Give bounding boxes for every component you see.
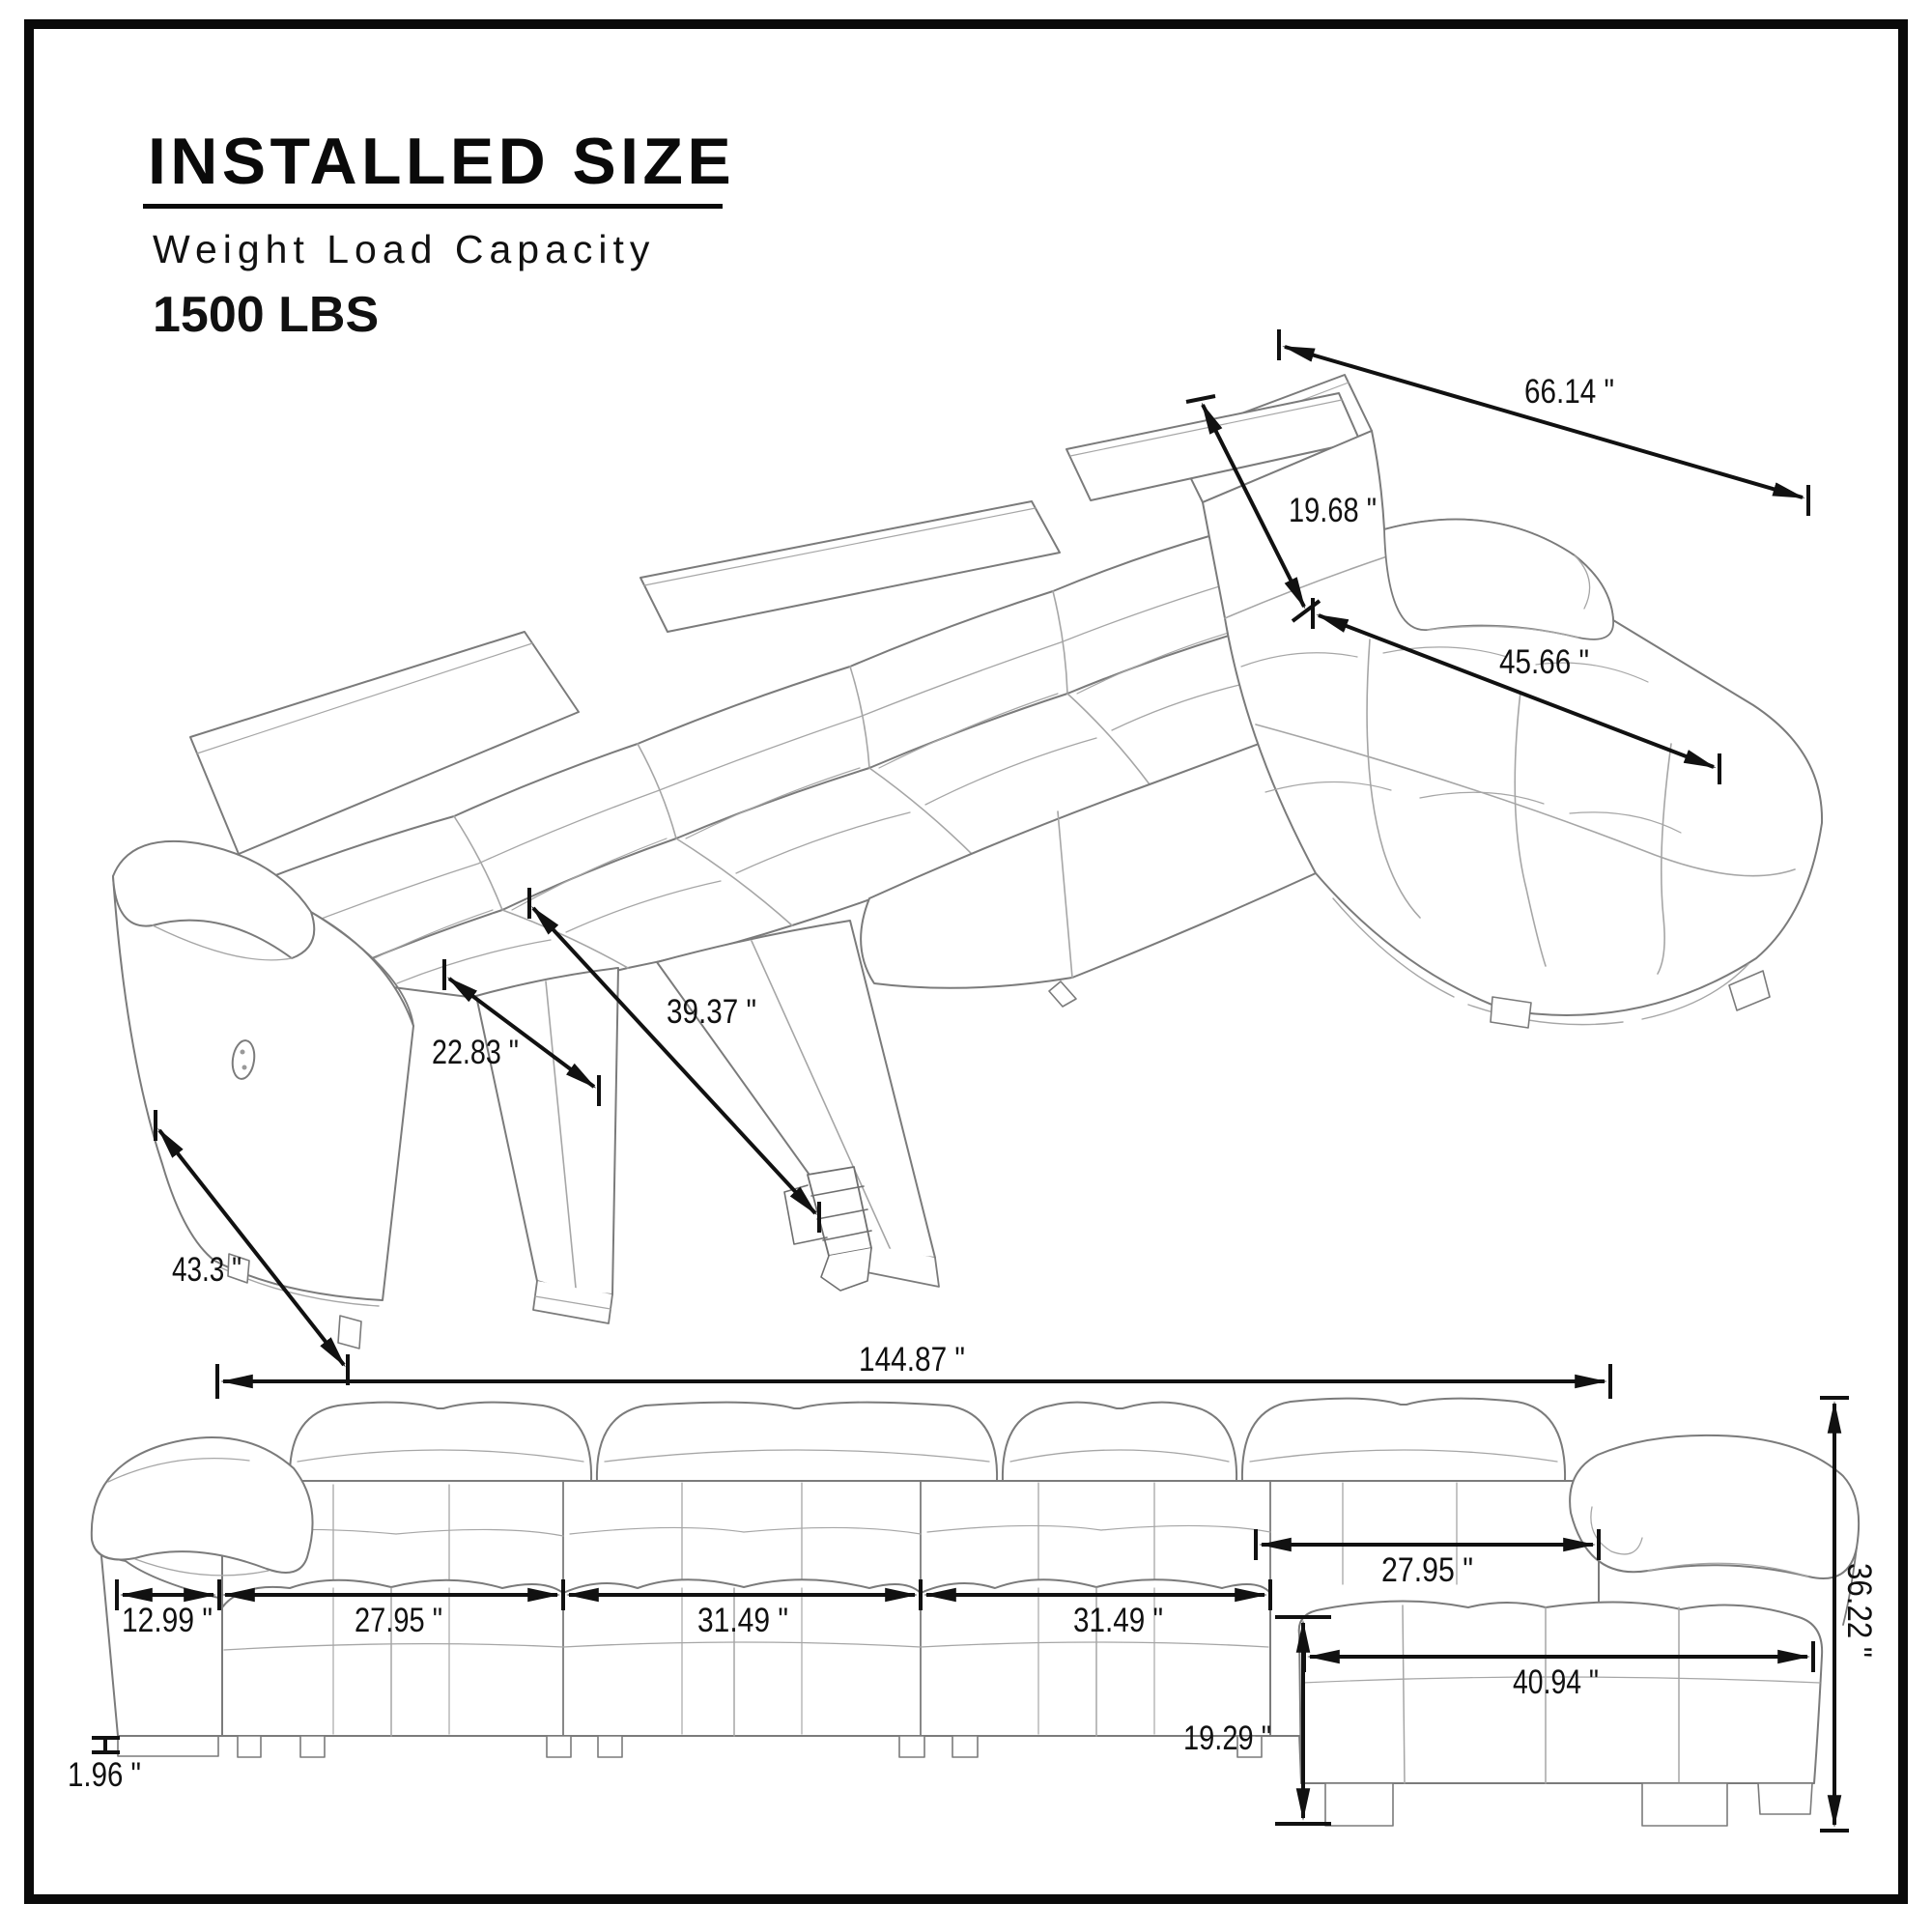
svg-text:Weight Load Capacity: Weight Load Capacity (153, 227, 655, 271)
svg-text:19.29 ": 19.29 " (1183, 1719, 1271, 1757)
svg-text:12.99 ": 12.99 " (122, 1602, 213, 1639)
svg-text:31.49 ": 31.49 " (1073, 1602, 1163, 1639)
svg-text:144.87 ": 144.87 " (859, 1341, 965, 1378)
svg-text:31.49 ": 31.49 " (697, 1602, 788, 1639)
svg-text:43.3 ": 43.3 " (172, 1251, 241, 1289)
svg-text:INSTALLED SIZE: INSTALLED SIZE (148, 125, 735, 198)
svg-text:1.96 ": 1.96 " (68, 1756, 141, 1794)
svg-text:40.94 ": 40.94 " (1513, 1663, 1599, 1701)
svg-text:1500 LBS: 1500 LBS (153, 287, 379, 343)
svg-text:22.83 ": 22.83 " (432, 1034, 519, 1071)
svg-text:27.95 ": 27.95 " (1381, 1551, 1473, 1589)
svg-text:36.22 ": 36.22 " (1840, 1563, 1878, 1658)
svg-text:27.95 ": 27.95 " (355, 1602, 442, 1639)
svg-text:39.37 ": 39.37 " (667, 993, 756, 1031)
svg-text:19.68 ": 19.68 " (1289, 492, 1377, 529)
svg-text:66.14 ": 66.14 " (1524, 373, 1614, 411)
svg-text:45.66 ": 45.66 " (1499, 643, 1589, 681)
